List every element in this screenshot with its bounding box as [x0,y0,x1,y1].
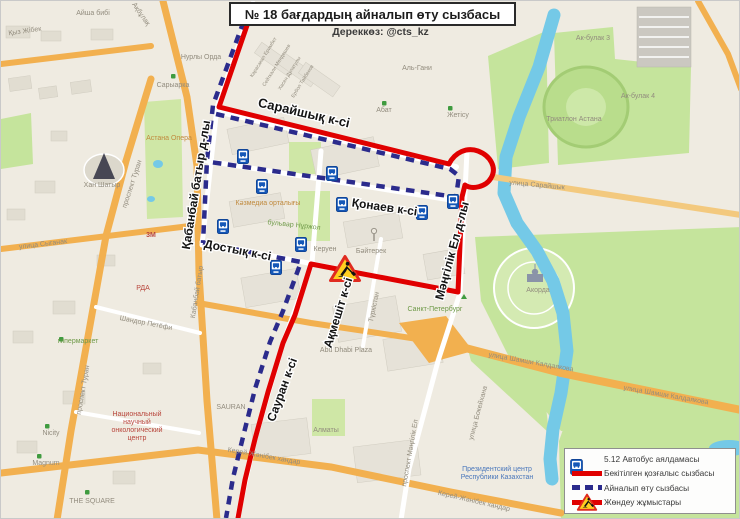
legend-row-roadworks: Жөндеу жұмыстары [570,495,730,510]
svg-text:Президентский центр: Президентский центр [462,465,532,473]
svg-text:Magnum: Magnum [32,460,59,467]
detour-route-line-sample [572,485,602,490]
svg-text:Жетісу: Жетісу [447,111,469,119]
legend-label: Айналып өту сызбасы [604,483,689,493]
bus-stop-icon [217,219,228,233]
svg-text:Хан Шатыр: Хан Шатыр [84,182,121,189]
svg-text:Абат: Абат [376,106,392,114]
bus-stop-icon [326,166,337,180]
svg-text:Бәйтерек: Бәйтерек [356,247,387,255]
roadworks-icon [576,493,598,512]
bus-stop-icon [416,205,427,219]
svg-text:THE SQUARE: THE SQUARE [69,498,115,505]
source-credit: Дереккөз: @cts_kz [239,26,522,38]
svg-text:Ак-булак 3: Ак-булак 3 [576,34,610,42]
svg-text:Аль-Гани: Аль-Гани [402,65,432,72]
svg-text:Национальный: Национальный [112,410,161,418]
svg-text:3М: 3М [146,232,156,239]
legend-label: Жөндеу жұмыстары [604,497,681,507]
bus-stop-icon [336,197,347,211]
legend-row-approved-route: Бекітілген қозғалыс сызбасы [570,466,730,480]
svg-text:Акорда: Акорда [526,287,550,294]
bus-stop-icon [256,179,267,193]
route-map-screenshot: Сарайшық к-сі Қонаев к-сі Достық к-сі Қа… [0,0,740,519]
legend-label: Бекітілген қозғалыс сызбасы [604,468,714,478]
svg-text:центр: центр [128,435,147,442]
svg-text:гипермаркет: гипермаркет [58,338,99,345]
svg-text:Кәзмедиа орталығы: Кәзмедиа орталығы [236,200,301,207]
svg-text:научный: научный [123,418,151,426]
svg-text:Триатлон Астана: Триатлон Астана [546,116,601,123]
map-canvas[interactable]: Сарайшық к-сі Қонаев к-сі Достық к-сі Қа… [1,1,740,519]
title-box: № 18 бағдардың айналып өту сызбасы [229,2,516,26]
page-title: № 18 бағдардың айналып өту сызбасы [245,7,500,22]
svg-text:Айша бибі: Айша бибі [76,9,110,17]
svg-text:Abu Dhabi Plaza: Abu Dhabi Plaza [320,347,372,354]
svg-text:Керуен: Керуен [314,246,337,253]
svg-text:Сарыарка: Сарыарка [157,82,190,89]
svg-text:SAURAN: SAURAN [216,404,245,411]
bus-stop-icon [270,260,281,274]
bus-stop-icon [295,237,306,251]
svg-text:Nicity: Nicity [42,430,60,437]
bus-stop-icon [237,149,248,163]
legend: 5.12 Автобус аялдамасы Бекітілген қозғал… [564,448,736,514]
svg-text:Санкт-Петербург: Санкт-Петербург [408,305,463,313]
svg-text:Республики Казахстан: Республики Казахстан [461,473,534,481]
svg-text:РДА: РДА [136,285,150,292]
approved-route-line-sample [572,471,602,476]
legend-label: 5.12 Автобус аялдамасы [604,454,699,464]
svg-text:Ак-булак 4: Ак-булак 4 [621,92,655,100]
svg-text:Нурлы Орда: Нурлы Орда [181,54,221,61]
svg-text:Астана Опера: Астана Опера [146,135,192,142]
legend-row-bus-stop: 5.12 Автобус аялдамасы [570,452,730,466]
svg-text:Алматы: Алматы [313,427,339,434]
svg-text:онкологический: онкологический [111,426,162,434]
